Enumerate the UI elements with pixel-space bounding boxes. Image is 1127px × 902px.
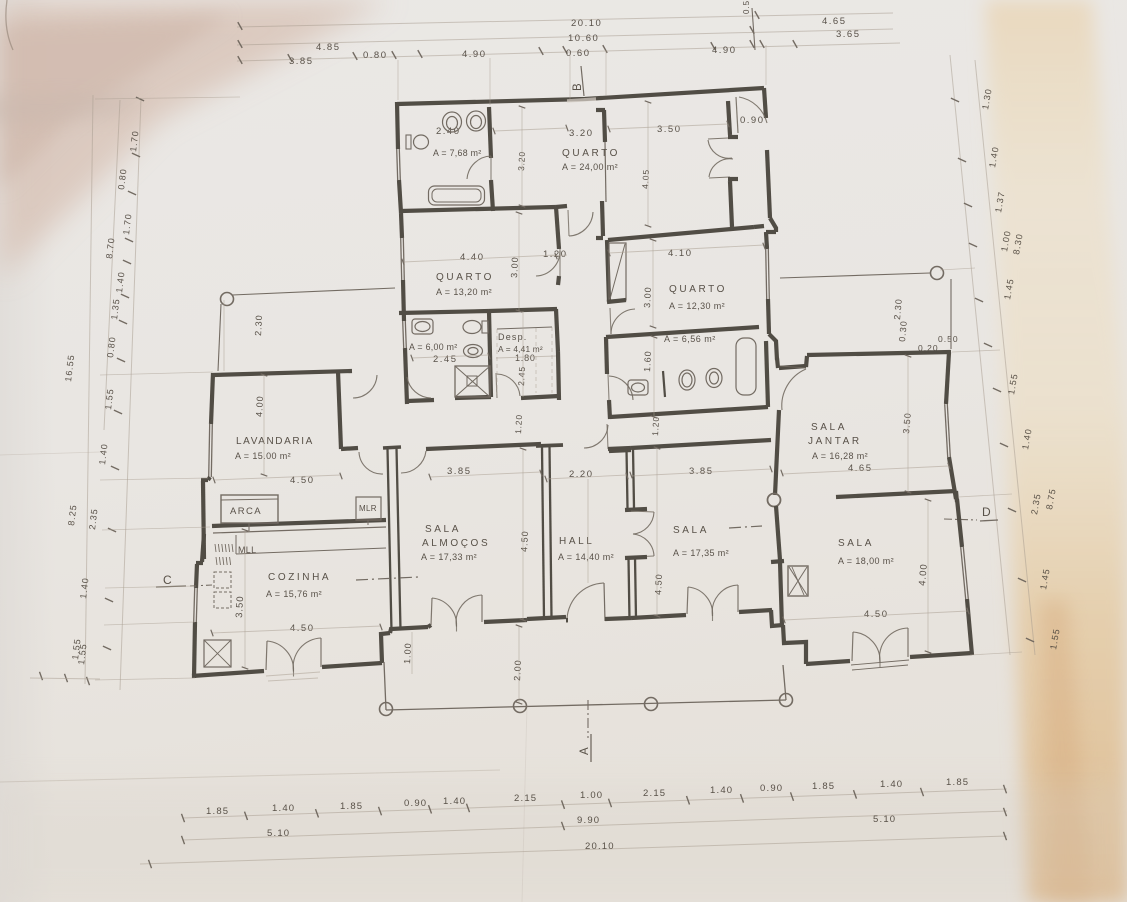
svg-text:C: C (163, 573, 172, 587)
svg-text:1.00: 1.00 (580, 790, 603, 801)
svg-text:1.85: 1.85 (340, 801, 363, 812)
svg-text:3.20: 3.20 (516, 151, 527, 171)
svg-text:1.80: 1.80 (515, 353, 536, 363)
svg-text:20.10: 20.10 (571, 18, 602, 29)
svg-text:1.00: 1.00 (402, 642, 413, 664)
svg-text:A = 18,00 m²: A = 18,00 m² (838, 556, 894, 566)
svg-text:10.60: 10.60 (568, 33, 599, 44)
svg-text:3.50: 3.50 (234, 595, 246, 618)
svg-text:2.00: 2.00 (512, 659, 523, 681)
svg-text:3.00: 3.00 (509, 256, 520, 278)
svg-text:0.90: 0.90 (740, 115, 765, 126)
svg-text:3.20: 3.20 (569, 128, 594, 139)
svg-text:B: B (572, 83, 584, 91)
svg-text:LAVANDARIA: LAVANDARIA (236, 436, 314, 447)
svg-text:A = 24,00 m²: A = 24,00 m² (562, 162, 618, 172)
svg-text:1.40: 1.40 (272, 803, 295, 814)
svg-text:A = 13,20 m²: A = 13,20 m² (436, 287, 492, 297)
svg-text:QUARTO: QUARTO (562, 148, 620, 159)
svg-text:4.65: 4.65 (822, 16, 847, 27)
svg-text:D: D (982, 505, 991, 519)
svg-text:1.60: 1.60 (642, 350, 653, 372)
svg-text:0.90: 0.90 (760, 783, 783, 794)
svg-text:2.30: 2.30 (253, 314, 264, 336)
svg-text:1.40: 1.40 (710, 785, 733, 796)
svg-text:A = 15,76 m²: A = 15,76 m² (266, 589, 322, 599)
svg-text:2.45: 2.45 (516, 366, 527, 386)
svg-text:1.40: 1.40 (880, 779, 903, 790)
svg-text:9.90: 9.90 (577, 815, 600, 826)
svg-text:4.65: 4.65 (848, 463, 873, 474)
svg-text:QUARTO: QUARTO (436, 272, 494, 283)
svg-text:2.30: 2.30 (892, 298, 904, 320)
svg-text:ARCA: ARCA (230, 506, 262, 517)
svg-text:SALA: SALA (811, 422, 847, 433)
svg-text:SALA: SALA (673, 525, 709, 536)
svg-text:MLR: MLR (359, 504, 377, 513)
svg-text:0.50: 0.50 (938, 334, 959, 344)
svg-text:A = 6,00 m²: A = 6,00 m² (409, 342, 458, 352)
svg-text:A = 16,28 m²: A = 16,28 m² (812, 451, 868, 461)
svg-text:QUARTO: QUARTO (669, 284, 727, 295)
svg-text:0.90: 0.90 (404, 798, 427, 809)
svg-text:ALMOÇOS: ALMOÇOS (422, 538, 490, 549)
svg-text:A = 14,40 m²: A = 14,40 m² (558, 552, 614, 562)
svg-text:0.30: 0.30 (897, 320, 909, 342)
svg-text:2.20: 2.20 (569, 469, 594, 480)
svg-text:COZINHA: COZINHA (268, 572, 331, 583)
svg-text:4.85: 4.85 (316, 42, 341, 53)
svg-text:4.90: 4.90 (462, 49, 487, 60)
svg-text:1.20: 1.20 (513, 414, 524, 434)
svg-text:JANTAR: JANTAR (808, 436, 862, 447)
svg-text:5.10: 5.10 (873, 814, 896, 825)
svg-text:0.50: 0.50 (742, 0, 751, 14)
svg-text:0.80: 0.80 (363, 50, 388, 61)
svg-text:2.15: 2.15 (643, 788, 666, 799)
svg-text:2.45: 2.45 (433, 354, 458, 365)
svg-text:2.15: 2.15 (514, 793, 537, 804)
svg-text:A: A (579, 747, 591, 755)
svg-text:4.50: 4.50 (864, 609, 889, 620)
svg-text:5.10: 5.10 (267, 828, 290, 839)
svg-text:A = 17,35 m²: A = 17,35 m² (673, 548, 729, 558)
svg-text:3.85: 3.85 (289, 56, 314, 67)
svg-text:A = 7,68 m²: A = 7,68 m² (433, 148, 482, 158)
svg-text:4.40: 4.40 (460, 252, 485, 263)
svg-text:20.10: 20.10 (585, 841, 615, 852)
svg-text:HALL: HALL (559, 536, 594, 547)
svg-text:4.50: 4.50 (519, 530, 530, 552)
svg-text:4.05: 4.05 (640, 169, 651, 189)
svg-text:A = 17,33 m²: A = 17,33 m² (421, 552, 477, 562)
svg-text:1.85: 1.85 (206, 806, 229, 817)
svg-text:3.50: 3.50 (657, 124, 682, 135)
svg-text:1.85: 1.85 (812, 781, 835, 792)
svg-text:3.00: 3.00 (642, 286, 653, 308)
svg-text:SALA: SALA (425, 524, 461, 535)
svg-text:1.85: 1.85 (946, 777, 969, 788)
svg-text:A = 6,56 m²: A = 6,56 m² (664, 334, 716, 344)
svg-text:1.40: 1.40 (443, 796, 466, 807)
svg-text:A = 15.00 m²: A = 15.00 m² (235, 451, 291, 461)
svg-text:3.85: 3.85 (689, 466, 714, 477)
svg-text:1.20: 1.20 (650, 416, 661, 436)
svg-text:4.90: 4.90 (712, 45, 737, 56)
svg-text:4.00: 4.00 (254, 395, 265, 417)
svg-text:3.65: 3.65 (836, 29, 861, 40)
svg-text:A = 12,30 m²: A = 12,30 m² (669, 301, 725, 311)
svg-text:3.50: 3.50 (901, 412, 913, 434)
svg-text:SALA: SALA (838, 538, 874, 549)
svg-text:4.50: 4.50 (653, 573, 664, 595)
